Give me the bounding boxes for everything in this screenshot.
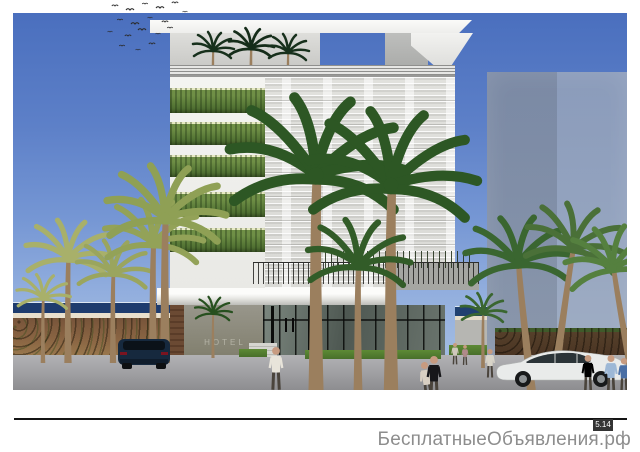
site-watermark: БесплатныеОбъявления.рф	[378, 429, 631, 451]
green-wall-panel	[170, 88, 265, 113]
ghost-building	[487, 72, 627, 357]
door-handle	[292, 318, 294, 332]
terrace-railing	[253, 262, 479, 284]
stone-pier	[170, 305, 184, 355]
grass-strip	[449, 345, 487, 355]
grass-strip	[239, 349, 267, 357]
page: HOTEL	[0, 0, 640, 452]
footer-divider	[14, 418, 627, 420]
green-wall-panel	[170, 228, 265, 252]
green-wall-facade	[170, 77, 265, 288]
green-wall-panel	[170, 155, 265, 177]
entrance-door	[271, 306, 311, 355]
green-wall-panel	[170, 192, 265, 217]
planter-bed	[495, 328, 627, 357]
birds-flock	[85, 0, 215, 62]
grass-strip	[305, 350, 441, 359]
beach-shrub-field	[13, 318, 175, 358]
architectural-rendering: HOTEL	[13, 13, 627, 390]
street	[13, 355, 627, 390]
door-handle	[285, 318, 287, 332]
green-wall-panel	[170, 122, 265, 145]
